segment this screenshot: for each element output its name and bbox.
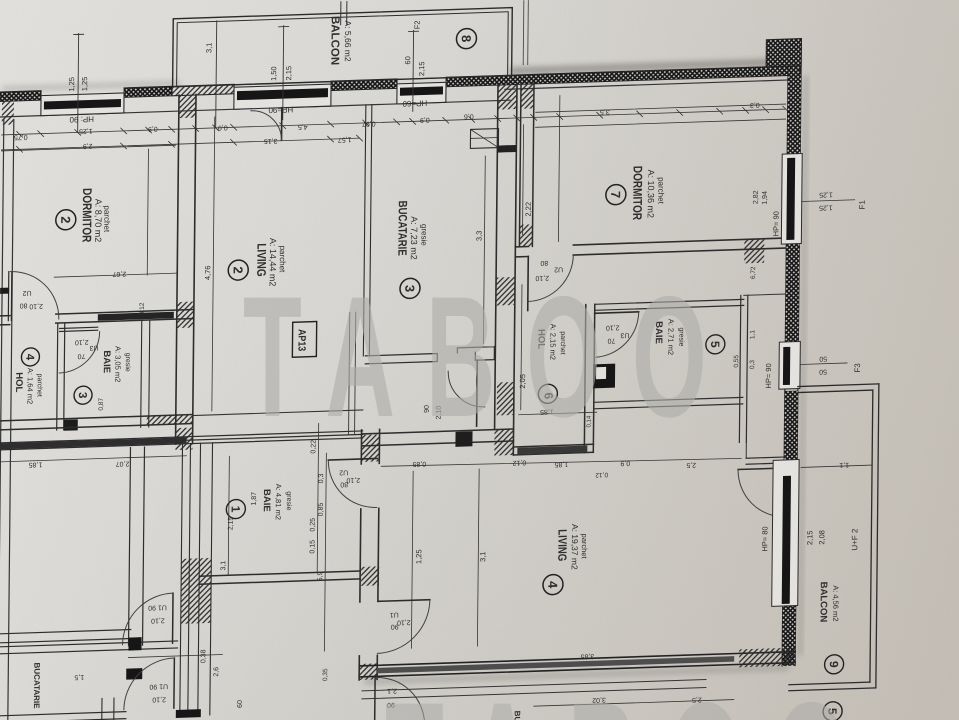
svg-text:3,1: 3,1 (478, 551, 487, 562)
svg-text:3,5: 3,5 (600, 108, 610, 115)
svg-text:BAIE: BAIE (261, 489, 272, 512)
svg-text:2,10: 2,10 (346, 476, 360, 483)
svg-text:1,25: 1,25 (67, 77, 76, 92)
svg-text:BUCATARIE: BUCATARIE (395, 200, 409, 255)
svg-text:A: 19,37 m2: A: 19,37 m2 (570, 524, 580, 570)
svg-text:1: 1 (229, 506, 243, 513)
svg-text:2,22: 2,22 (524, 202, 533, 217)
svg-text:2,15: 2,15 (228, 516, 235, 530)
svg-text:0,9: 0,9 (420, 116, 430, 123)
svg-text:1,1: 1,1 (749, 330, 756, 340)
svg-text:0,9: 0,9 (218, 123, 228, 130)
svg-text:gresie: gresie (124, 353, 131, 372)
svg-text:parchet: parchet (36, 373, 43, 397)
svg-text:parchet: parchet (580, 533, 589, 559)
svg-text:0,3: 0,3 (749, 360, 756, 370)
svg-text:80: 80 (20, 302, 28, 309)
svg-text:50: 50 (819, 355, 827, 362)
svg-text:0,75: 0,75 (14, 133, 28, 140)
svg-text:1,57: 1,57 (338, 135, 352, 142)
svg-text:U2: U2 (339, 468, 348, 475)
svg-text:parchet: parchet (656, 177, 665, 205)
svg-text:4: 4 (23, 354, 35, 361)
svg-text:gresie: gresie (419, 224, 428, 247)
svg-text:U2: U2 (22, 289, 31, 296)
svg-text:1,85: 1,85 (29, 460, 43, 467)
svg-text:BALCON: BALCON (818, 581, 829, 622)
svg-text:2,10: 2,10 (397, 618, 411, 625)
svg-text:0,12: 0,12 (512, 459, 526, 466)
svg-text:1,25: 1,25 (79, 127, 93, 134)
svg-text:70: 70 (78, 352, 86, 359)
svg-text:0,38: 0,38 (200, 649, 207, 663)
svg-text:BAIE: BAIE (101, 350, 112, 373)
svg-text:1,1: 1,1 (839, 461, 849, 468)
svg-text:4: 4 (545, 581, 560, 589)
svg-text:7: 7 (608, 191, 623, 199)
svg-text:1,25: 1,25 (414, 549, 423, 564)
svg-text:2,10: 2,10 (29, 302, 43, 309)
svg-text:4,5: 4,5 (298, 123, 308, 130)
svg-text:0,97: 0,97 (362, 120, 376, 127)
svg-text:2,15: 2,15 (284, 66, 293, 81)
svg-text:0,12: 0,12 (595, 471, 608, 478)
svg-text:A: 4,81 m2: A: 4,81 m2 (274, 484, 283, 521)
svg-text:0,6: 0,6 (464, 112, 474, 119)
svg-text:0,35: 0,35 (322, 668, 329, 681)
svg-text:HP=90: HP=90 (268, 105, 293, 115)
svg-text:4,76: 4,76 (203, 265, 212, 280)
svg-text:DORMITOR: DORMITOR (79, 188, 93, 243)
svg-text:TABOO: TABOO (385, 667, 880, 720)
svg-text:1,25: 1,25 (819, 203, 833, 210)
svg-text:1,94: 1,94 (762, 191, 769, 205)
svg-text:6,72: 6,72 (750, 266, 757, 279)
svg-text:0,3: 0,3 (318, 473, 325, 483)
svg-text:BUCATARIE: BUCATARIE (32, 662, 41, 709)
svg-text:A: 10,36 m2: A: 10,36 m2 (646, 169, 656, 218)
svg-text:8: 8 (459, 35, 474, 43)
svg-text:A: 7,23 m2: A: 7,23 m2 (409, 216, 419, 260)
svg-text:3,85: 3,85 (581, 652, 595, 659)
svg-text:TABOO: TABOO (243, 261, 738, 453)
svg-text:U1 90: U1 90 (149, 682, 168, 690)
svg-text:HP=60: HP=60 (402, 98, 427, 108)
svg-text:U1 90: U1 90 (148, 603, 167, 611)
svg-text:1,85: 1,85 (554, 460, 568, 467)
svg-text:1,25: 1,25 (80, 76, 89, 91)
svg-text:0,85: 0,85 (412, 460, 426, 467)
svg-text:F3: F3 (853, 363, 862, 373)
svg-text:3: 3 (76, 392, 88, 399)
svg-text:0,85: 0,85 (318, 502, 325, 516)
svg-text:U3: U3 (89, 344, 98, 351)
svg-text:3,1: 3,1 (220, 561, 227, 571)
svg-text:HP= 90: HP= 90 (771, 211, 780, 237)
svg-text:2,15: 2,15 (805, 530, 814, 545)
svg-text:DORMITOR: DORMITOR (630, 166, 644, 221)
svg-text:3,1: 3,1 (204, 43, 213, 54)
svg-text:0,15: 0,15 (309, 540, 316, 554)
svg-text:2,10: 2,10 (152, 695, 166, 702)
svg-text:1,25: 1,25 (819, 190, 833, 197)
svg-text:0,12: 0,12 (139, 302, 146, 315)
svg-text:2,10: 2,10 (75, 338, 89, 345)
svg-text:U1: U1 (390, 611, 399, 618)
svg-text:0,25: 0,25 (310, 518, 317, 532)
svg-text:HOL: HOL (13, 372, 24, 393)
svg-text:A: 5,66 m2: A: 5,66 m2 (343, 20, 353, 62)
svg-text:2,67: 2,67 (112, 270, 126, 277)
svg-text:1,87: 1,87 (251, 492, 258, 506)
svg-text:3,15: 3,15 (264, 137, 278, 144)
svg-text:3,3: 3,3 (474, 231, 483, 242)
svg-text:A: 1,64 m2: A: 1,64 m2 (25, 368, 34, 405)
svg-text:A: 8,70 m2: A: 8,70 m2 (93, 199, 103, 243)
svg-text:0,9: 0,9 (148, 125, 158, 132)
svg-text:LIVING: LIVING (555, 529, 569, 561)
svg-text:50: 50 (819, 368, 827, 375)
svg-text:2,5: 2,5 (686, 461, 696, 468)
svg-text:0,87: 0,87 (98, 397, 105, 410)
svg-text:1,5: 1,5 (74, 673, 84, 680)
svg-text:HP= 80: HP= 80 (760, 526, 769, 552)
svg-text:U+F 2: U+F 2 (850, 528, 859, 551)
svg-text:F2: F2 (413, 20, 422, 29)
svg-text:0,9: 0,9 (620, 459, 630, 466)
svg-text:2,08: 2,08 (817, 530, 826, 545)
svg-text:A: 3,05 m2: A: 3,05 m2 (113, 346, 122, 383)
svg-text:2,07: 2,07 (116, 460, 130, 467)
svg-text:1,50: 1,50 (269, 66, 278, 81)
svg-text:A: 4,56 m2: A: 4,56 m2 (831, 585, 840, 622)
svg-text:2,10: 2,10 (151, 616, 165, 623)
svg-text:gresie: gresie (285, 491, 292, 510)
svg-text:60: 60 (403, 56, 412, 65)
svg-text:2,15: 2,15 (417, 61, 426, 76)
svg-text:HP: 90: HP: 90 (69, 114, 94, 124)
svg-text:HP= 90: HP= 90 (764, 363, 773, 389)
svg-text:2: 2 (58, 216, 73, 224)
svg-text:BALCON: BALCON (328, 16, 340, 66)
svg-text:2,82: 2,82 (753, 190, 760, 204)
svg-text:2,6: 2,6 (213, 667, 220, 677)
svg-text:parchet: parchet (102, 205, 111, 233)
svg-text:F1: F1 (858, 199, 867, 209)
svg-text:60: 60 (237, 700, 244, 708)
